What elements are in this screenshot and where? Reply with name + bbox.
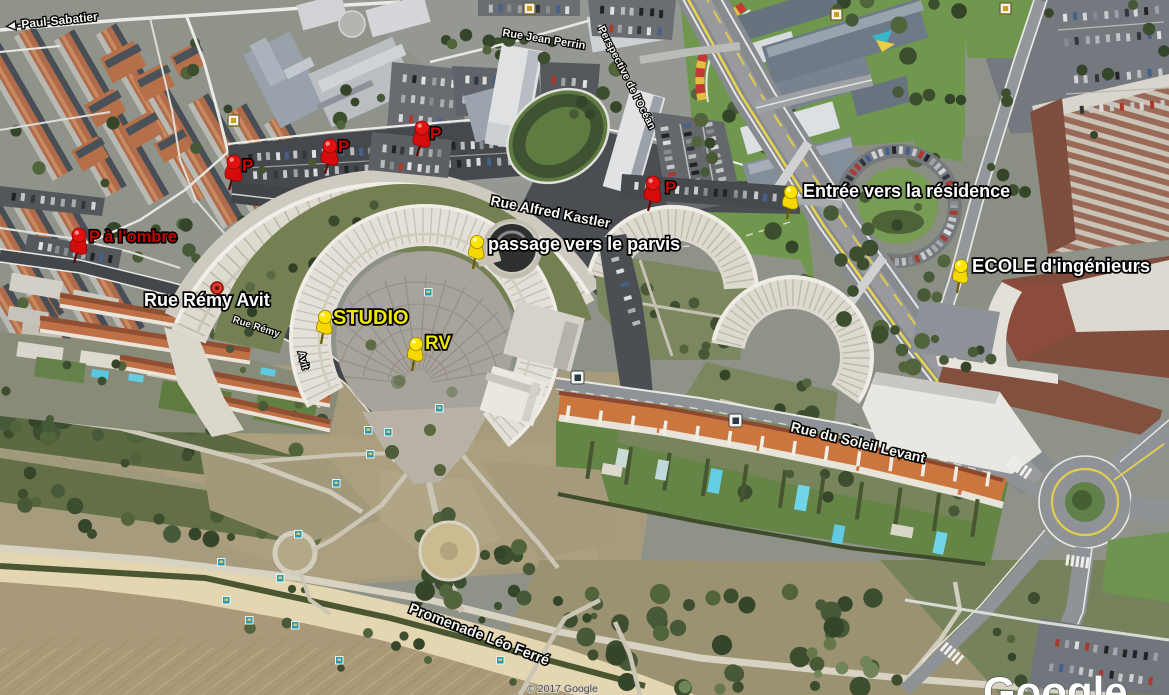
svg-text:Google: Google xyxy=(983,668,1128,695)
svg-text:P: P xyxy=(242,156,253,175)
svg-text:STUDIO: STUDIO xyxy=(333,307,409,329)
svg-text:P: P xyxy=(665,178,676,197)
svg-text:RV: RV xyxy=(425,333,451,354)
svg-text:ECOLE d'ingénieurs: ECOLE d'ingénieurs xyxy=(972,255,1150,276)
svg-text:passage vers le parvis: passage vers le parvis xyxy=(488,234,680,254)
svg-text:P à l'ombre: P à l'ombre xyxy=(89,228,177,246)
svg-text:Rue Rémy Avit: Rue Rémy Avit xyxy=(144,290,270,310)
svg-text:Entrée vers la résidence: Entrée vers la résidence xyxy=(803,181,1010,201)
svg-text:© 2017 Google: © 2017 Google xyxy=(527,683,598,695)
svg-text:P: P xyxy=(338,137,349,156)
svg-text:P: P xyxy=(430,124,441,143)
